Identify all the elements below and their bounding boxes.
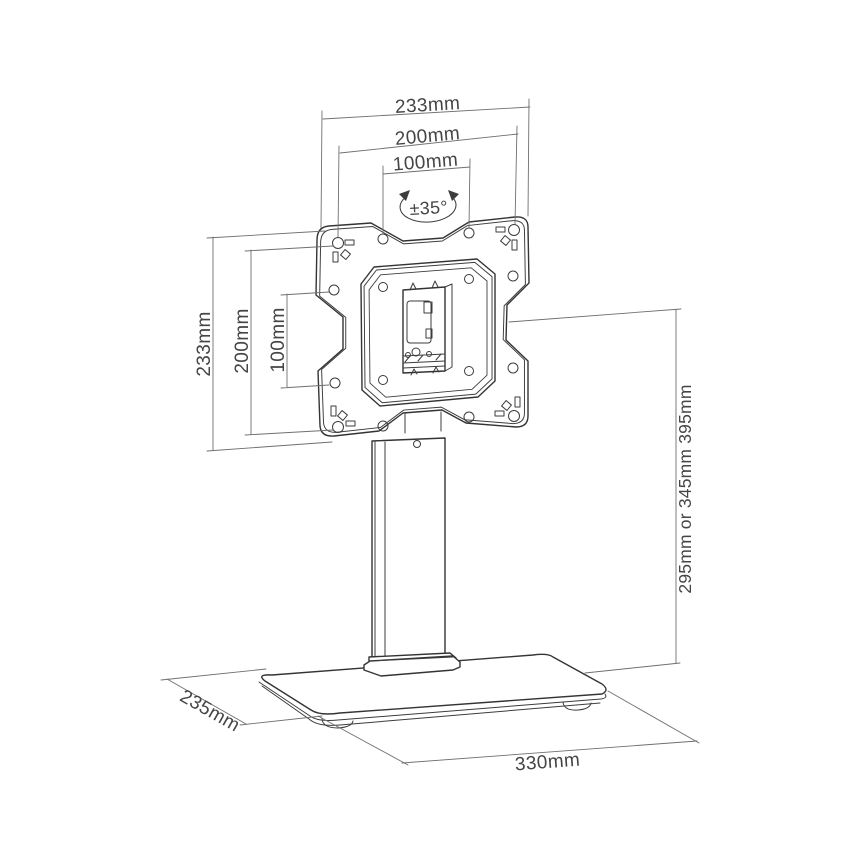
- dim-label-right-height: 295mm or 345mm 395mm: [675, 384, 695, 593]
- column-top-edges: [405, 412, 441, 433]
- rotation-label: ±35°: [409, 197, 448, 219]
- technical-drawing-page: ±35° 233mm 200mm 100mm 233mm 200mm 100mm…: [0, 0, 868, 868]
- dim-label-top-200: 200mm: [394, 123, 461, 150]
- monitor-stand-drawing: ±35° 233mm 200mm 100mm 233mm 200mm 100mm…: [0, 0, 868, 868]
- column-body: [372, 438, 445, 661]
- dim-line-right-height: [509, 309, 681, 673]
- dim-label-top-100: 100mm: [392, 149, 459, 175]
- support-column: [364, 412, 460, 676]
- dim-label-left-233: 233mm: [194, 311, 215, 376]
- dim-label-left-100: 100mm: [268, 307, 289, 372]
- vesa-plate: [316, 217, 529, 448]
- dim-label-base-width: 330mm: [514, 750, 581, 776]
- rotation-indicator: ±35°: [399, 190, 459, 222]
- quick-release-bracket: [403, 281, 452, 375]
- dim-label-left-200: 200mm: [232, 308, 253, 373]
- dim-label-base-depth: 235mm: [176, 686, 243, 736]
- dim-label-top-233: 233mm: [394, 93, 460, 118]
- rotation-arrow-right-icon: [448, 190, 459, 201]
